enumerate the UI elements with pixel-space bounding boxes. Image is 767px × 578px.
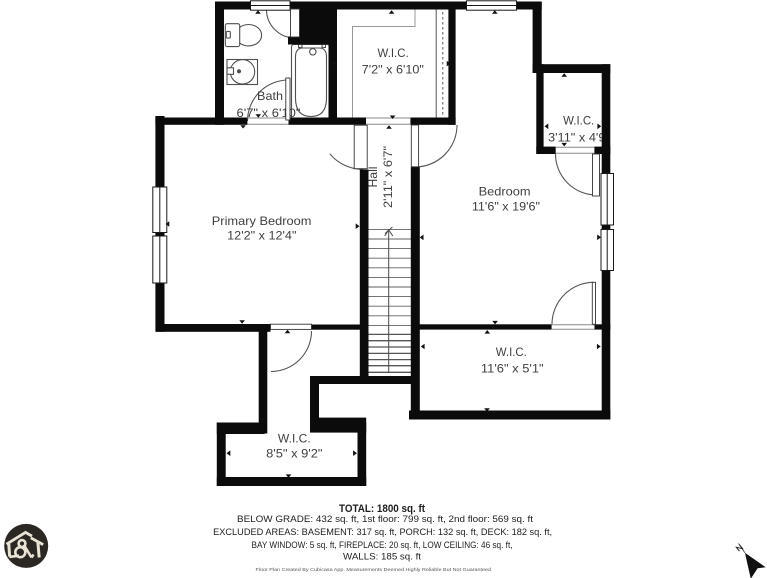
svg-text:WALLS: 185 sq. ft: WALLS: 185 sq. ft	[343, 552, 422, 562]
svg-text:W.I.C.: W.I.C.	[563, 113, 594, 127]
svg-text:W.I.C.: W.I.C.	[378, 46, 409, 60]
svg-text:8'5" x 9'2": 8'5" x 9'2"	[266, 447, 322, 461]
svg-text:Bedroom: Bedroom	[479, 184, 531, 198]
svg-text:BAY WINDOW: 5 sq. ft, FIREPLAC: BAY WINDOW: 5 sq. ft, FIREPLACE: 20 sq. …	[252, 540, 513, 550]
svg-text:Bath: Bath	[257, 89, 283, 103]
svg-text:BELOW GRADE: 432 sq. ft, 1st f: BELOW GRADE: 432 sq. ft, 1st floor: 799 …	[237, 514, 534, 524]
svg-text:11'6" x 5'1": 11'6" x 5'1"	[481, 361, 544, 375]
svg-text:Primary Bedroom: Primary Bedroom	[212, 214, 312, 228]
svg-text:EXCLUDED AREAS: BASEMENT: 317: EXCLUDED AREAS: BASEMENT: 317 sq. ft, PO…	[213, 527, 552, 537]
svg-text:2'11" x 6'7": 2'11" x 6'7"	[381, 146, 395, 208]
svg-text:W.I.C.: W.I.C.	[496, 345, 527, 359]
svg-text:W.I.C.: W.I.C.	[278, 431, 311, 445]
svg-text:7'2" x 6'10": 7'2" x 6'10"	[362, 63, 424, 77]
svg-text:11'6" x 19'6": 11'6" x 19'6"	[472, 199, 540, 213]
svg-text:3'11" x 4'9": 3'11" x 4'9"	[548, 130, 610, 144]
svg-text:12'2" x 12'4": 12'2" x 12'4"	[227, 229, 296, 243]
svg-text:Floor Plan Created By Cubicasa: Floor Plan Created By Cubicasa App. Meas…	[256, 567, 493, 572]
